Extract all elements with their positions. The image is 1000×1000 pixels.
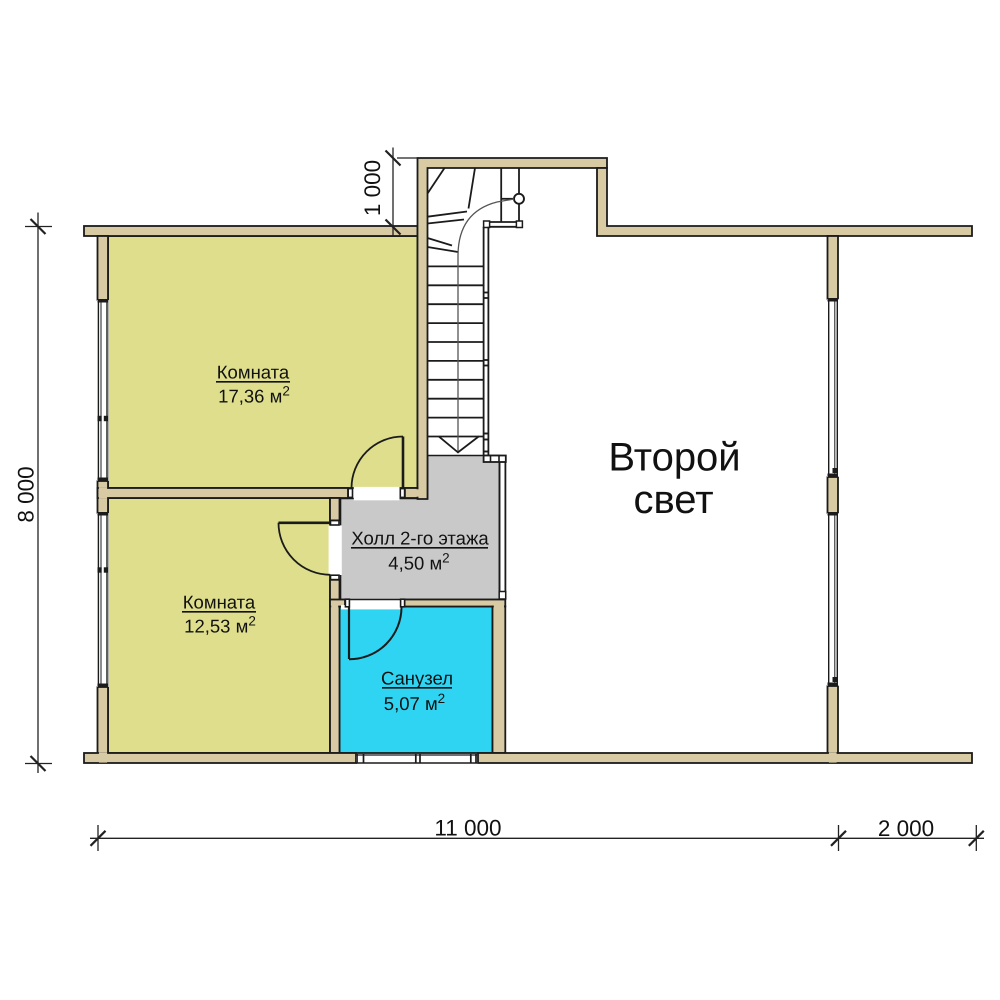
svg-text:Санузел: Санузел [381,668,453,689]
svg-text:2 000: 2 000 [878,816,934,841]
svg-text:Второй: Второй [608,436,740,480]
svg-text:Холл 2-го этажа: Холл 2-го этажа [351,528,489,549]
svg-text:8 000: 8 000 [14,466,39,522]
svg-text:1 000: 1 000 [360,160,385,216]
svg-text:свет: свет [633,478,713,522]
svg-text:Комната: Комната [183,592,256,613]
svg-text:4,50 м2: 4,50 м2 [388,551,449,574]
svg-text:11 000: 11 000 [434,816,501,841]
svg-text:Комната: Комната [217,362,290,383]
svg-text:5,07 м2: 5,07 м2 [384,691,445,714]
svg-text:17,36 м2: 17,36 м2 [218,384,290,407]
svg-text:12,53 м2: 12,53 м2 [184,614,256,637]
